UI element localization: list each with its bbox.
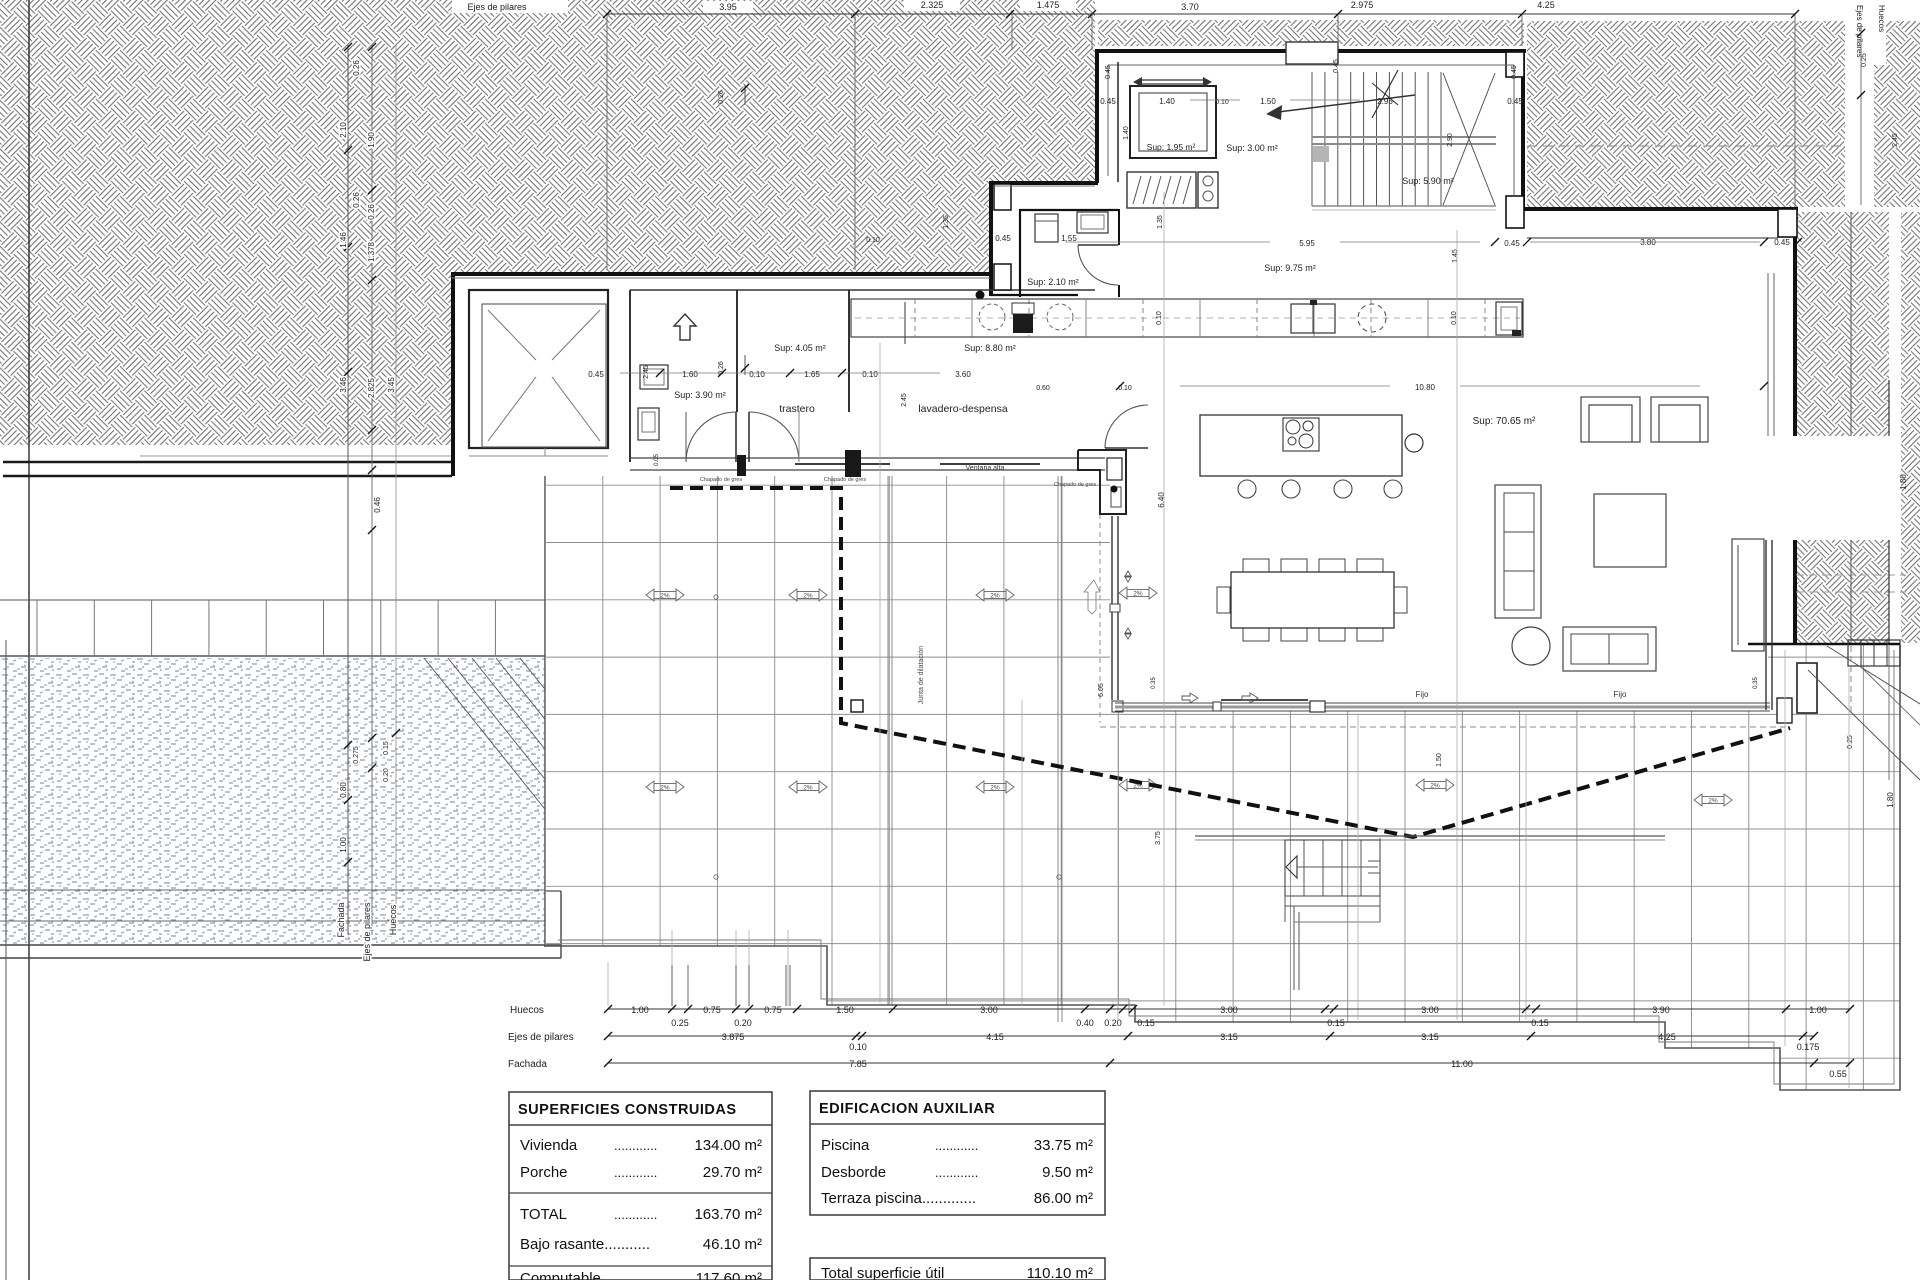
svg-text:0.05: 0.05	[654, 454, 660, 466]
svg-text:Sup: 70.65 m²: Sup: 70.65 m²	[1473, 416, 1536, 427]
svg-text:1.90: 1.90	[367, 132, 376, 148]
svg-text:Total superficie útil: Total superficie útil	[821, 1265, 944, 1280]
svg-text:0.26: 0.26	[718, 90, 725, 104]
svg-text:2.45: 2.45	[643, 365, 650, 379]
svg-text:0.10: 0.10	[749, 370, 765, 379]
svg-text:SUPERFICIES CONSTRUIDAS: SUPERFICIES CONSTRUIDAS	[518, 1102, 737, 1118]
svg-text:0.15: 0.15	[383, 741, 390, 755]
svg-text:1.65: 1.65	[804, 370, 820, 379]
svg-text:86.00 m²: 86.00 m²	[1034, 1190, 1093, 1207]
svg-text:1.60: 1.60	[682, 370, 698, 379]
svg-text:Sup: 2.10 m²: Sup: 2.10 m²	[1027, 277, 1079, 287]
svg-text:0.75: 0.75	[703, 1005, 721, 1015]
svg-text:0.275: 0.275	[353, 746, 360, 764]
svg-text:Junta de dilatación: Junta de dilatación	[918, 646, 925, 704]
svg-text:0.45: 0.45	[1504, 239, 1520, 248]
svg-text:0.45: 0.45	[1333, 59, 1340, 73]
svg-text:0.35: 0.35	[1753, 677, 1759, 689]
svg-text:0.10: 0.10	[866, 237, 880, 244]
svg-text:9.50 m²: 9.50 m²	[1042, 1164, 1093, 1181]
svg-text:0.26: 0.26	[367, 204, 376, 220]
svg-text:............: ............	[614, 1165, 657, 1180]
svg-text:0.15: 0.15	[1531, 1018, 1549, 1028]
svg-text:Sup: 9.75 m²: Sup: 9.75 m²	[1264, 263, 1316, 273]
svg-text:29.70 m²: 29.70 m²	[703, 1164, 762, 1181]
svg-text:Sup: 1.95 m²: Sup: 1.95 m²	[1147, 142, 1196, 152]
svg-text:Ejes de pilares: Ejes de pilares	[467, 2, 527, 12]
svg-text:Chapado de gres: Chapado de gres	[700, 477, 742, 483]
svg-text:0.26: 0.26	[352, 60, 361, 76]
svg-text:1.00: 1.00	[339, 837, 348, 853]
svg-text:Ejes de pilares: Ejes de pilares	[508, 1032, 574, 1043]
svg-text:1.50: 1.50	[1436, 753, 1443, 767]
svg-text:46.10 m²: 46.10 m²	[703, 1236, 762, 1253]
svg-text:1.00: 1.00	[631, 1005, 649, 1015]
svg-text:0.10: 0.10	[849, 1042, 867, 1052]
svg-text:0.20: 0.20	[1104, 1018, 1122, 1028]
svg-text:0.80: 0.80	[339, 782, 348, 798]
svg-text:3.875: 3.875	[722, 1032, 745, 1042]
svg-text:0.10: 0.10	[862, 370, 878, 379]
svg-text:3.15: 3.15	[1220, 1032, 1238, 1042]
svg-text:2%: 2%	[1708, 798, 1718, 805]
svg-text:0.35: 0.35	[1151, 677, 1157, 689]
svg-text:5.95: 5.95	[1299, 239, 1315, 248]
svg-text:2%: 2%	[660, 785, 670, 792]
svg-text:1.475: 1.475	[1037, 0, 1060, 10]
svg-text:0.60: 0.60	[1036, 385, 1050, 392]
svg-text:2%: 2%	[803, 785, 813, 792]
svg-text:3.95: 3.95	[719, 2, 737, 12]
svg-text:Fijo: Fijo	[1416, 690, 1429, 699]
svg-text:1.378: 1.378	[367, 241, 376, 262]
svg-text:1.46: 1.46	[339, 232, 348, 248]
svg-text:EDIFICACION AUXILIAR: EDIFICACION AUXILIAR	[819, 1101, 995, 1117]
svg-text:1.35: 1.35	[1157, 215, 1164, 229]
svg-text:3.90: 3.90	[1652, 1005, 1670, 1015]
svg-text:3.46: 3.46	[339, 377, 348, 393]
svg-text:2.90: 2.90	[1447, 133, 1454, 147]
svg-text:0.40: 0.40	[1076, 1018, 1094, 1028]
svg-text:2%: 2%	[803, 593, 813, 600]
svg-text:2.10: 2.10	[339, 122, 348, 138]
svg-text:1.35: 1.35	[943, 215, 950, 229]
svg-text:Sup: 5.90 m²: Sup: 5.90 m²	[1402, 176, 1454, 186]
svg-text:0.15: 0.15	[1327, 1018, 1345, 1028]
svg-text:0.45: 0.45	[1105, 65, 1112, 79]
svg-text:lavadero-despensa: lavadero-despensa	[918, 403, 1007, 415]
svg-text:4.25: 4.25	[1537, 0, 1555, 10]
svg-text:1.00: 1.00	[1809, 1005, 1827, 1015]
svg-text:3.45: 3.45	[387, 377, 396, 393]
svg-text:Huecos: Huecos	[388, 904, 398, 935]
svg-text:4.25: 4.25	[1658, 1032, 1676, 1042]
svg-text:Sup: 8.80 m²: Sup: 8.80 m²	[964, 343, 1016, 353]
svg-text:2%: 2%	[1430, 783, 1440, 790]
svg-text:Porche: Porche	[520, 1164, 568, 1181]
svg-text:3.00: 3.00	[980, 1005, 998, 1015]
svg-text:............: ............	[614, 1138, 657, 1153]
svg-text:Piscina: Piscina	[821, 1137, 870, 1154]
svg-text:............: ............	[935, 1165, 978, 1180]
svg-text:1.80: 1.80	[1899, 474, 1908, 490]
svg-text:4.15: 4.15	[986, 1032, 1004, 1042]
svg-text:0.20: 0.20	[734, 1018, 752, 1028]
svg-text:3.00: 3.00	[1421, 1005, 1439, 1015]
svg-text:0.75: 0.75	[764, 1005, 782, 1015]
svg-text:2.975: 2.975	[1351, 0, 1374, 10]
svg-text:3.70: 3.70	[1181, 2, 1199, 12]
svg-text:Terraza piscina.............: Terraza piscina.............	[821, 1190, 976, 1207]
svg-text:Chapado de gres: Chapado de gres	[824, 477, 866, 483]
svg-text:Sup: 4.05 m²: Sup: 4.05 m²	[774, 343, 826, 353]
svg-text:2%: 2%	[660, 593, 670, 600]
svg-text:0.25: 0.25	[1847, 735, 1854, 749]
svg-text:Sup: 3.90 m²: Sup: 3.90 m²	[674, 390, 726, 400]
svg-text:33.75 m²: 33.75 m²	[1034, 1137, 1093, 1154]
svg-text:0.45: 0.45	[1774, 238, 1790, 247]
svg-text:0.45: 0.45	[1100, 97, 1116, 106]
svg-text:............: ............	[935, 1138, 978, 1153]
svg-text:2%: 2%	[1133, 591, 1143, 598]
svg-text:Desborde: Desborde	[821, 1164, 886, 1181]
svg-text:110.10 m²: 110.10 m²	[1027, 1265, 1093, 1280]
svg-text:134.00 m²: 134.00 m²	[694, 1137, 762, 1154]
svg-text:Fijo: Fijo	[1614, 690, 1627, 699]
svg-text:Vivienda: Vivienda	[520, 1137, 578, 1154]
svg-text:Huecos: Huecos	[510, 1005, 544, 1016]
svg-text:1.80: 1.80	[1886, 792, 1895, 808]
svg-text:0.10: 0.10	[1118, 385, 1132, 392]
svg-text:3.00: 3.00	[1220, 1005, 1238, 1015]
svg-text:............: ............	[614, 1271, 657, 1280]
svg-text:Ejes de pilares: Ejes de pilares	[362, 902, 372, 962]
svg-text:0.10: 0.10	[1156, 311, 1163, 325]
svg-text:Huecos: Huecos	[1877, 5, 1886, 32]
svg-text:0.175: 0.175	[1797, 1042, 1820, 1052]
svg-text:163.70 m²: 163.70 m²	[694, 1206, 762, 1223]
svg-text:1.40: 1.40	[1159, 97, 1175, 106]
svg-text:2.45: 2.45	[1892, 133, 1899, 147]
svg-text:6.05: 6.05	[1098, 683, 1105, 697]
svg-text:Chapado de gres: Chapado de gres	[1054, 482, 1096, 488]
svg-text:2%: 2%	[990, 593, 1000, 600]
svg-text:Fachada: Fachada	[508, 1059, 547, 1070]
svg-text:0.45: 0.45	[588, 370, 604, 379]
svg-text:trastero: trastero	[779, 403, 815, 415]
svg-text:Ventana alta: Ventana alta	[966, 465, 1005, 472]
svg-text:0.25: 0.25	[671, 1018, 689, 1028]
svg-text:2.95: 2.95	[1377, 97, 1393, 106]
svg-text:0.45: 0.45	[1511, 65, 1518, 79]
svg-text:3.60: 3.60	[955, 370, 971, 379]
svg-text:Sup: 3.00 m²: Sup: 3.00 m²	[1226, 143, 1278, 153]
svg-text:11.00: 11.00	[1451, 1059, 1473, 1069]
svg-text:1.50: 1.50	[1260, 97, 1276, 106]
svg-text:2.45: 2.45	[901, 393, 908, 407]
svg-text:TOTAL: TOTAL	[520, 1206, 567, 1223]
svg-text:0.26: 0.26	[352, 192, 361, 208]
svg-text:2%: 2%	[990, 785, 1000, 792]
svg-text:0.25: 0.25	[1861, 53, 1868, 67]
svg-text:0.55: 0.55	[1829, 1069, 1847, 1079]
svg-text:117.60 m²: 117.60 m²	[696, 1270, 762, 1280]
svg-text:Computable: Computable	[520, 1270, 601, 1280]
svg-text:............: ............	[614, 1207, 657, 1222]
svg-text:3.80: 3.80	[1640, 238, 1656, 247]
svg-text:0.20: 0.20	[383, 768, 390, 782]
svg-text:1.40: 1.40	[1123, 126, 1130, 140]
svg-text:Fachada: Fachada	[336, 902, 346, 937]
svg-text:2.825: 2.825	[367, 377, 376, 398]
svg-text:10.80: 10.80	[1415, 383, 1436, 392]
svg-text:6.40: 6.40	[1157, 492, 1166, 508]
svg-text:7.85: 7.85	[849, 1059, 867, 1069]
svg-text:Bajo rasante...........: Bajo rasante...........	[520, 1236, 650, 1253]
svg-text:3.15: 3.15	[1421, 1032, 1439, 1042]
svg-text:0.15: 0.15	[1137, 1018, 1155, 1028]
svg-text:0.45: 0.45	[1507, 97, 1523, 106]
svg-text:2.325: 2.325	[921, 0, 944, 10]
svg-text:0.46: 0.46	[373, 497, 382, 513]
svg-text:3.75: 3.75	[1155, 831, 1162, 845]
svg-text:1.50: 1.50	[836, 1005, 854, 1015]
svg-text:0.45: 0.45	[995, 234, 1011, 243]
svg-text:1.45: 1.45	[1452, 249, 1459, 263]
